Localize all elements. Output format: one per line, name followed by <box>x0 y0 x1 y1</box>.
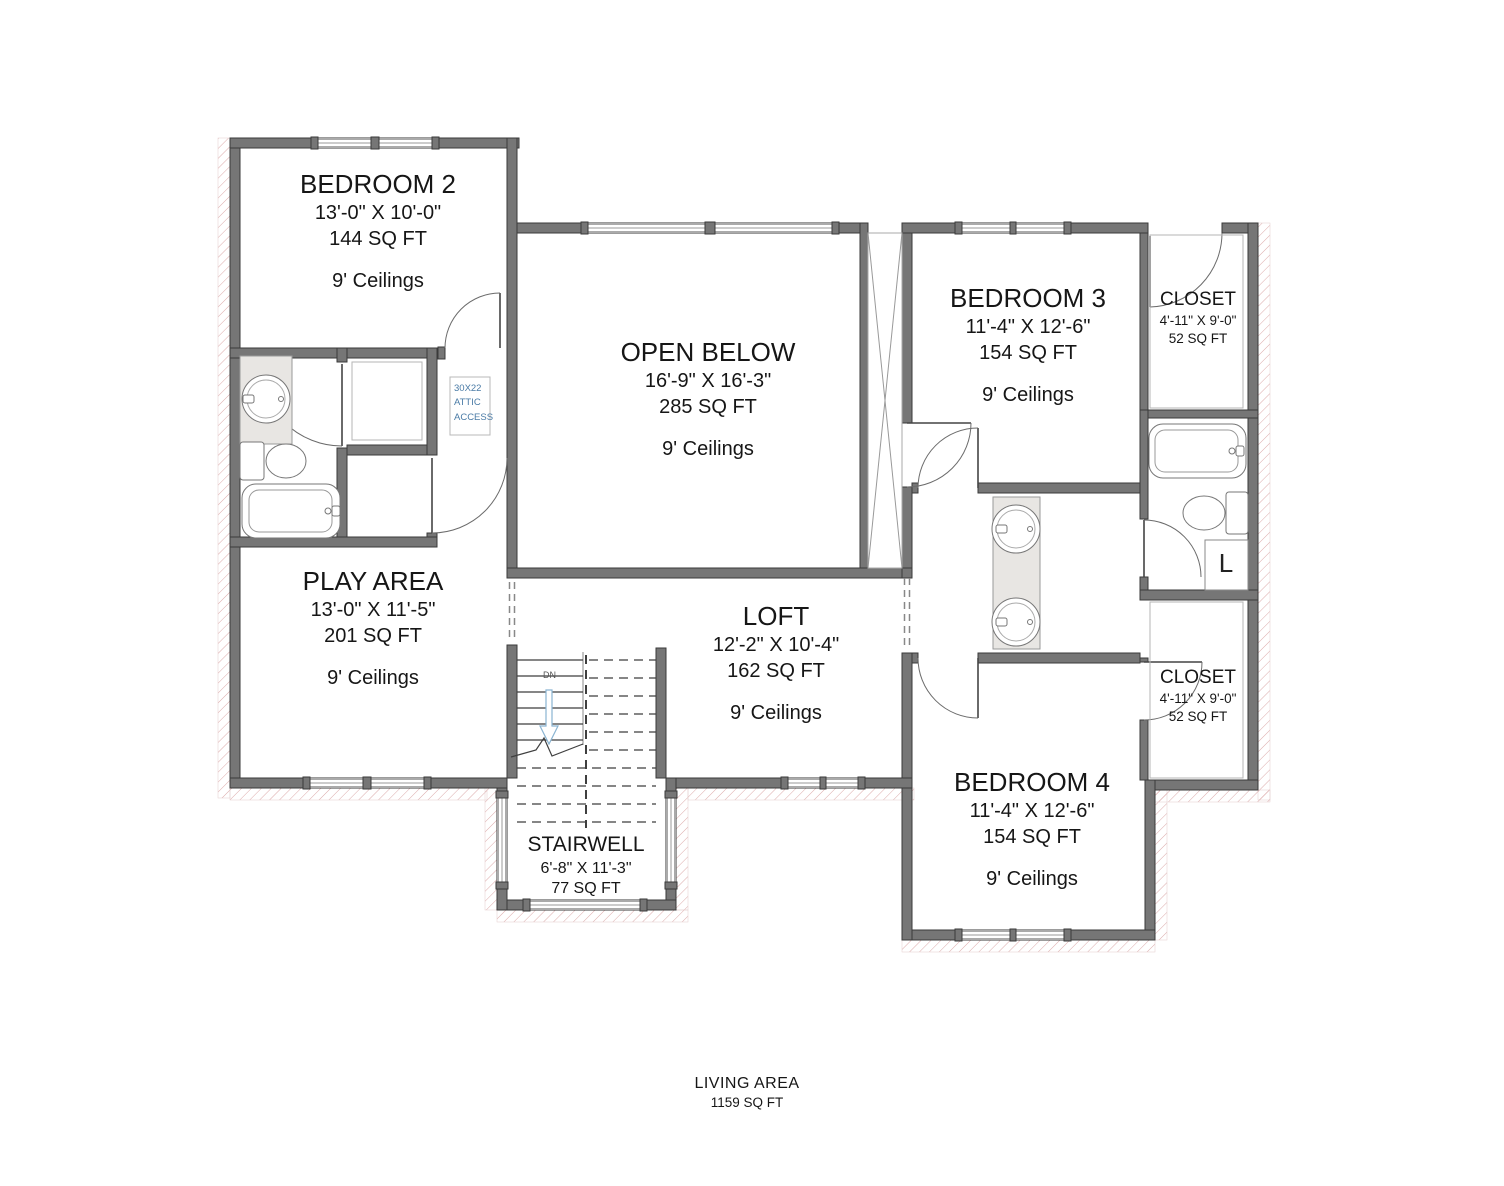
room-label-open-below: OPEN BELOW 16'-9" X 16'-3" 285 SQ FT 9' … <box>621 336 796 463</box>
room-name: STAIRWELL <box>527 832 644 859</box>
room-ceiling: 9' Ceilings <box>954 867 1110 893</box>
stairs <box>511 652 656 828</box>
attic-line: 30X22 <box>454 382 493 396</box>
attic-line: ATTIC <box>454 396 493 410</box>
room-label-closet-top: CLOSET 4'-11" X 9'-0" 52 SQ FT <box>1160 288 1237 347</box>
room-name: LOFT <box>713 600 839 633</box>
room-dims: 13'-0" X 10'-0" <box>300 201 456 227</box>
room-ceiling: 9' Ceilings <box>621 437 796 463</box>
room-dims: 16'-9" X 16'-3" <box>621 369 796 395</box>
toilet-room-door <box>1144 520 1201 577</box>
bathtub-left-icon <box>242 484 340 538</box>
closet-hall-door <box>432 458 507 533</box>
cased-openings <box>510 578 910 650</box>
faucet-icon <box>996 618 1007 626</box>
living-area-summary: LIVING AREA 1159 SQ FT <box>694 1074 799 1112</box>
room-label-loft: LOFT 12'-2" X 10'-4" 162 SQ FT 9' Ceilin… <box>713 600 839 727</box>
vanity-double <box>992 497 1040 649</box>
faucet-icon <box>996 525 1007 533</box>
room-area: 154 SQ FT <box>954 825 1110 851</box>
toilet-left-icon <box>240 442 306 480</box>
room-area: 77 SQ FT <box>527 879 644 899</box>
room-area: 52 SQ FT <box>1160 330 1237 347</box>
faucet-icon <box>243 395 254 403</box>
floor-plan-canvas: BEDROOM 2 13'-0" X 10'-0" 144 SQ FT 9' C… <box>0 0 1504 1186</box>
room-ceiling: 9' Ceilings <box>300 269 456 295</box>
room-dims: 11'-4" X 12'-6" <box>950 315 1106 341</box>
room-name: OPEN BELOW <box>621 336 796 369</box>
room-dims: 13'-0" X 11'-5" <box>303 598 444 624</box>
room-area: 154 SQ FT <box>950 341 1106 367</box>
room-label-closet-bottom: CLOSET 4'-11" X 9'-0" 52 SQ FT <box>1160 666 1237 725</box>
floor-plan-drawing <box>0 0 1504 1186</box>
room-dims: 6'-8" X 11'-3" <box>527 859 644 879</box>
room-ceiling: 9' Ceilings <box>713 701 839 727</box>
bathtub-right-icon <box>1149 424 1246 478</box>
room-area: 162 SQ FT <box>713 659 839 685</box>
room-name: BEDROOM 3 <box>950 282 1106 315</box>
attic-access-note: 30X22 ATTIC ACCESS <box>454 382 493 425</box>
linen-closet-label: L <box>1219 548 1233 579</box>
room-name: BEDROOM 2 <box>300 168 456 201</box>
room-label-stairwell: STAIRWELL 6'-8" X 11'-3" 77 SQ FT <box>527 832 644 900</box>
living-area-value: 1159 SQ FT <box>694 1094 799 1111</box>
room-name: PLAY AREA <box>303 565 444 598</box>
bath-bedroom3-door <box>918 428 978 488</box>
stair-direction-label: DN <box>543 670 556 680</box>
room-name: CLOSET <box>1160 666 1237 690</box>
room-dims: 12'-2" X 10'-4" <box>713 633 839 659</box>
room-dims: 4'-11" X 9'-0" <box>1160 312 1237 329</box>
living-area-label: LIVING AREA <box>694 1074 799 1094</box>
room-area: 201 SQ FT <box>303 624 444 650</box>
room-area: 52 SQ FT <box>1160 708 1237 725</box>
room-name: CLOSET <box>1160 288 1237 312</box>
room-label-bedroom4: BEDROOM 4 11'-4" X 12'-6" 154 SQ FT 9' C… <box>954 766 1110 893</box>
room-area: 285 SQ FT <box>621 395 796 421</box>
vanity-left <box>240 356 292 444</box>
room-ceiling: 9' Ceilings <box>303 666 444 692</box>
room-ceiling: 9' Ceilings <box>950 383 1106 409</box>
room-label-bedroom2: BEDROOM 2 13'-0" X 10'-0" 144 SQ FT 9' C… <box>300 168 456 295</box>
down-arrow-icon <box>540 690 558 744</box>
room-label-bedroom3: BEDROOM 3 11'-4" X 12'-6" 154 SQ FT 9' C… <box>950 282 1106 409</box>
room-label-play-area: PLAY AREA 13'-0" X 11'-5" 201 SQ FT 9' C… <box>303 565 444 692</box>
room-name: BEDROOM 4 <box>954 766 1110 799</box>
bedroom3-door <box>907 423 971 487</box>
toilet-right-icon <box>1183 492 1248 534</box>
chase-x <box>868 233 902 568</box>
room-dims: 4'-11" X 9'-0" <box>1160 690 1237 707</box>
bedroom2-door <box>445 293 500 348</box>
room-area: 144 SQ FT <box>300 227 456 253</box>
attic-line: ACCESS <box>454 411 493 425</box>
bath-bedroom4-door <box>918 658 978 718</box>
room-dims: 11'-4" X 12'-6" <box>954 799 1110 825</box>
